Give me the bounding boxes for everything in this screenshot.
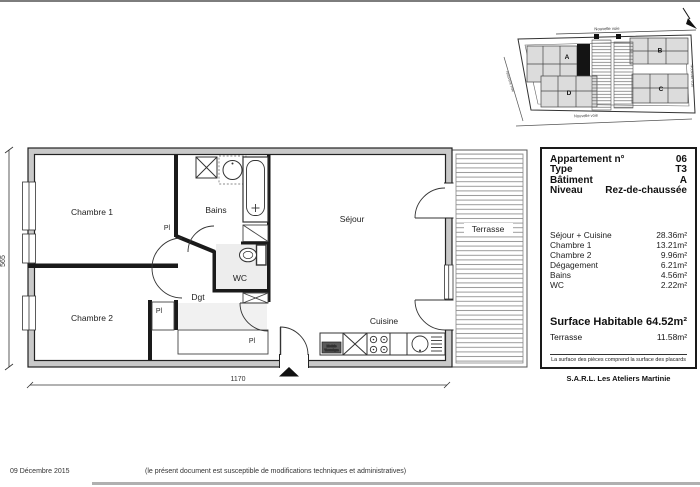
- label-pl-chambre2: Pl: [156, 308, 163, 315]
- label-pl-chambre1: Pl: [164, 225, 171, 232]
- floor-plan-page: Terrasse: [0, 0, 700, 487]
- area-label: WC: [550, 280, 564, 290]
- module-thermique-label2: Thermique: [324, 348, 339, 352]
- area-value: 9.96m²: [661, 250, 687, 260]
- building-b: B: [630, 38, 688, 64]
- total-value: 64.52m²: [646, 316, 687, 328]
- left-windows: [23, 182, 36, 330]
- page-bottom-edge: [92, 482, 700, 485]
- terrace-area-label: Terrasse: [550, 332, 582, 342]
- building-d-label: D: [567, 90, 572, 97]
- label-pl-entry: Pl: [249, 338, 256, 345]
- highlighted-unit: [577, 44, 590, 80]
- area-row: Bains 4.56m²: [550, 270, 687, 280]
- dim-width-label: 1170: [230, 376, 245, 383]
- area-label: Chambre 2: [550, 250, 591, 260]
- area-row: WC 2.22m²: [550, 280, 687, 290]
- bathtub-symbol: [243, 157, 268, 222]
- street-left-label: Nouvelle voie: [505, 71, 515, 93]
- apartment-info-panel: Appartement n° 06 Type T3 Bâtiment A Niv…: [540, 147, 697, 369]
- surface-habitable-row: Surface Habitable 64.52m²: [550, 316, 687, 328]
- terrace-area-value: 11.58m²: [657, 332, 687, 342]
- terrace-area-row: Terrasse 11.58m²: [550, 332, 687, 342]
- label-chambre2: Chambre 2: [71, 313, 113, 323]
- area-row: Séjour + Cuisine 28.36m²: [550, 230, 687, 240]
- area-value: 13.21m²: [656, 240, 687, 250]
- document-date: 09 Décembre 2015: [10, 468, 70, 475]
- building-c-label: C: [659, 86, 664, 93]
- street-right-label: Nouvelle voie: [690, 65, 695, 88]
- terrace-label: Terrasse: [472, 224, 505, 234]
- building-a-label: A: [565, 54, 570, 61]
- label-chambre1: Chambre 1: [71, 207, 113, 217]
- area-value: 6.21m²: [661, 260, 687, 270]
- area-label: Bains: [550, 270, 571, 280]
- dim-height-label: 565: [0, 255, 7, 267]
- area-label: Chambre 1: [550, 240, 591, 250]
- closet-chambre2: [152, 302, 174, 330]
- entry-floor: [178, 303, 267, 329]
- module-thermique-box: Module Thermique: [322, 342, 341, 353]
- company-name: S.A.R.L. Les Ateliers Martinie: [540, 374, 697, 383]
- area-row: Dégagement 6.21m²: [550, 260, 687, 270]
- label-bains: Bains: [205, 205, 226, 215]
- label-dgt: Dgt: [191, 292, 205, 302]
- label-sejour: Séjour: [340, 214, 365, 224]
- site-plan: Nouvelle voie Nouvelle voie Nouvelle voi…: [504, 8, 697, 126]
- building-d: D: [541, 76, 597, 107]
- street-top-line: [556, 30, 696, 34]
- info-label: Niveau: [550, 186, 583, 196]
- document-disclaimer: (le présent document est susceptible de …: [145, 468, 406, 475]
- entrance-arrow: [279, 367, 299, 377]
- area-value: 4.56m²: [661, 270, 687, 280]
- washbasin-symbol: [219, 156, 246, 184]
- building-b-label: B: [658, 48, 663, 55]
- terrace: Terrasse: [452, 150, 527, 367]
- area-row: Chambre 1 13.21m²: [550, 240, 687, 250]
- label-wc: WC: [233, 273, 247, 283]
- area-value: 28.36m²: [656, 230, 687, 240]
- north-arrow-icon: [683, 8, 697, 29]
- label-cuisine: Cuisine: [370, 316, 399, 326]
- area-value: 2.22m²: [661, 280, 687, 290]
- entrance-opening: [280, 354, 309, 368]
- street-top-label: Nouvelle voie: [594, 26, 620, 32]
- total-label: Surface Habitable: [550, 316, 643, 328]
- street-bottom-line: [516, 119, 692, 126]
- building-c: C: [632, 74, 688, 103]
- area-label: Séjour + Cuisine: [550, 230, 612, 240]
- panel-footnote: La surface des pièces comprend la surfac…: [550, 354, 687, 363]
- washing-machine-symbol: [196, 157, 217, 178]
- area-row: Chambre 2 9.96m²: [550, 250, 687, 260]
- street-bottom-label: Nouvelle voie: [574, 113, 599, 119]
- area-label: Dégagement: [550, 260, 598, 270]
- info-row-niveau: Niveau Rez-de-chaussée: [550, 186, 687, 196]
- kitchen-counter: Module Thermique: [320, 333, 445, 355]
- info-value: Rez-de-chaussée: [605, 186, 687, 196]
